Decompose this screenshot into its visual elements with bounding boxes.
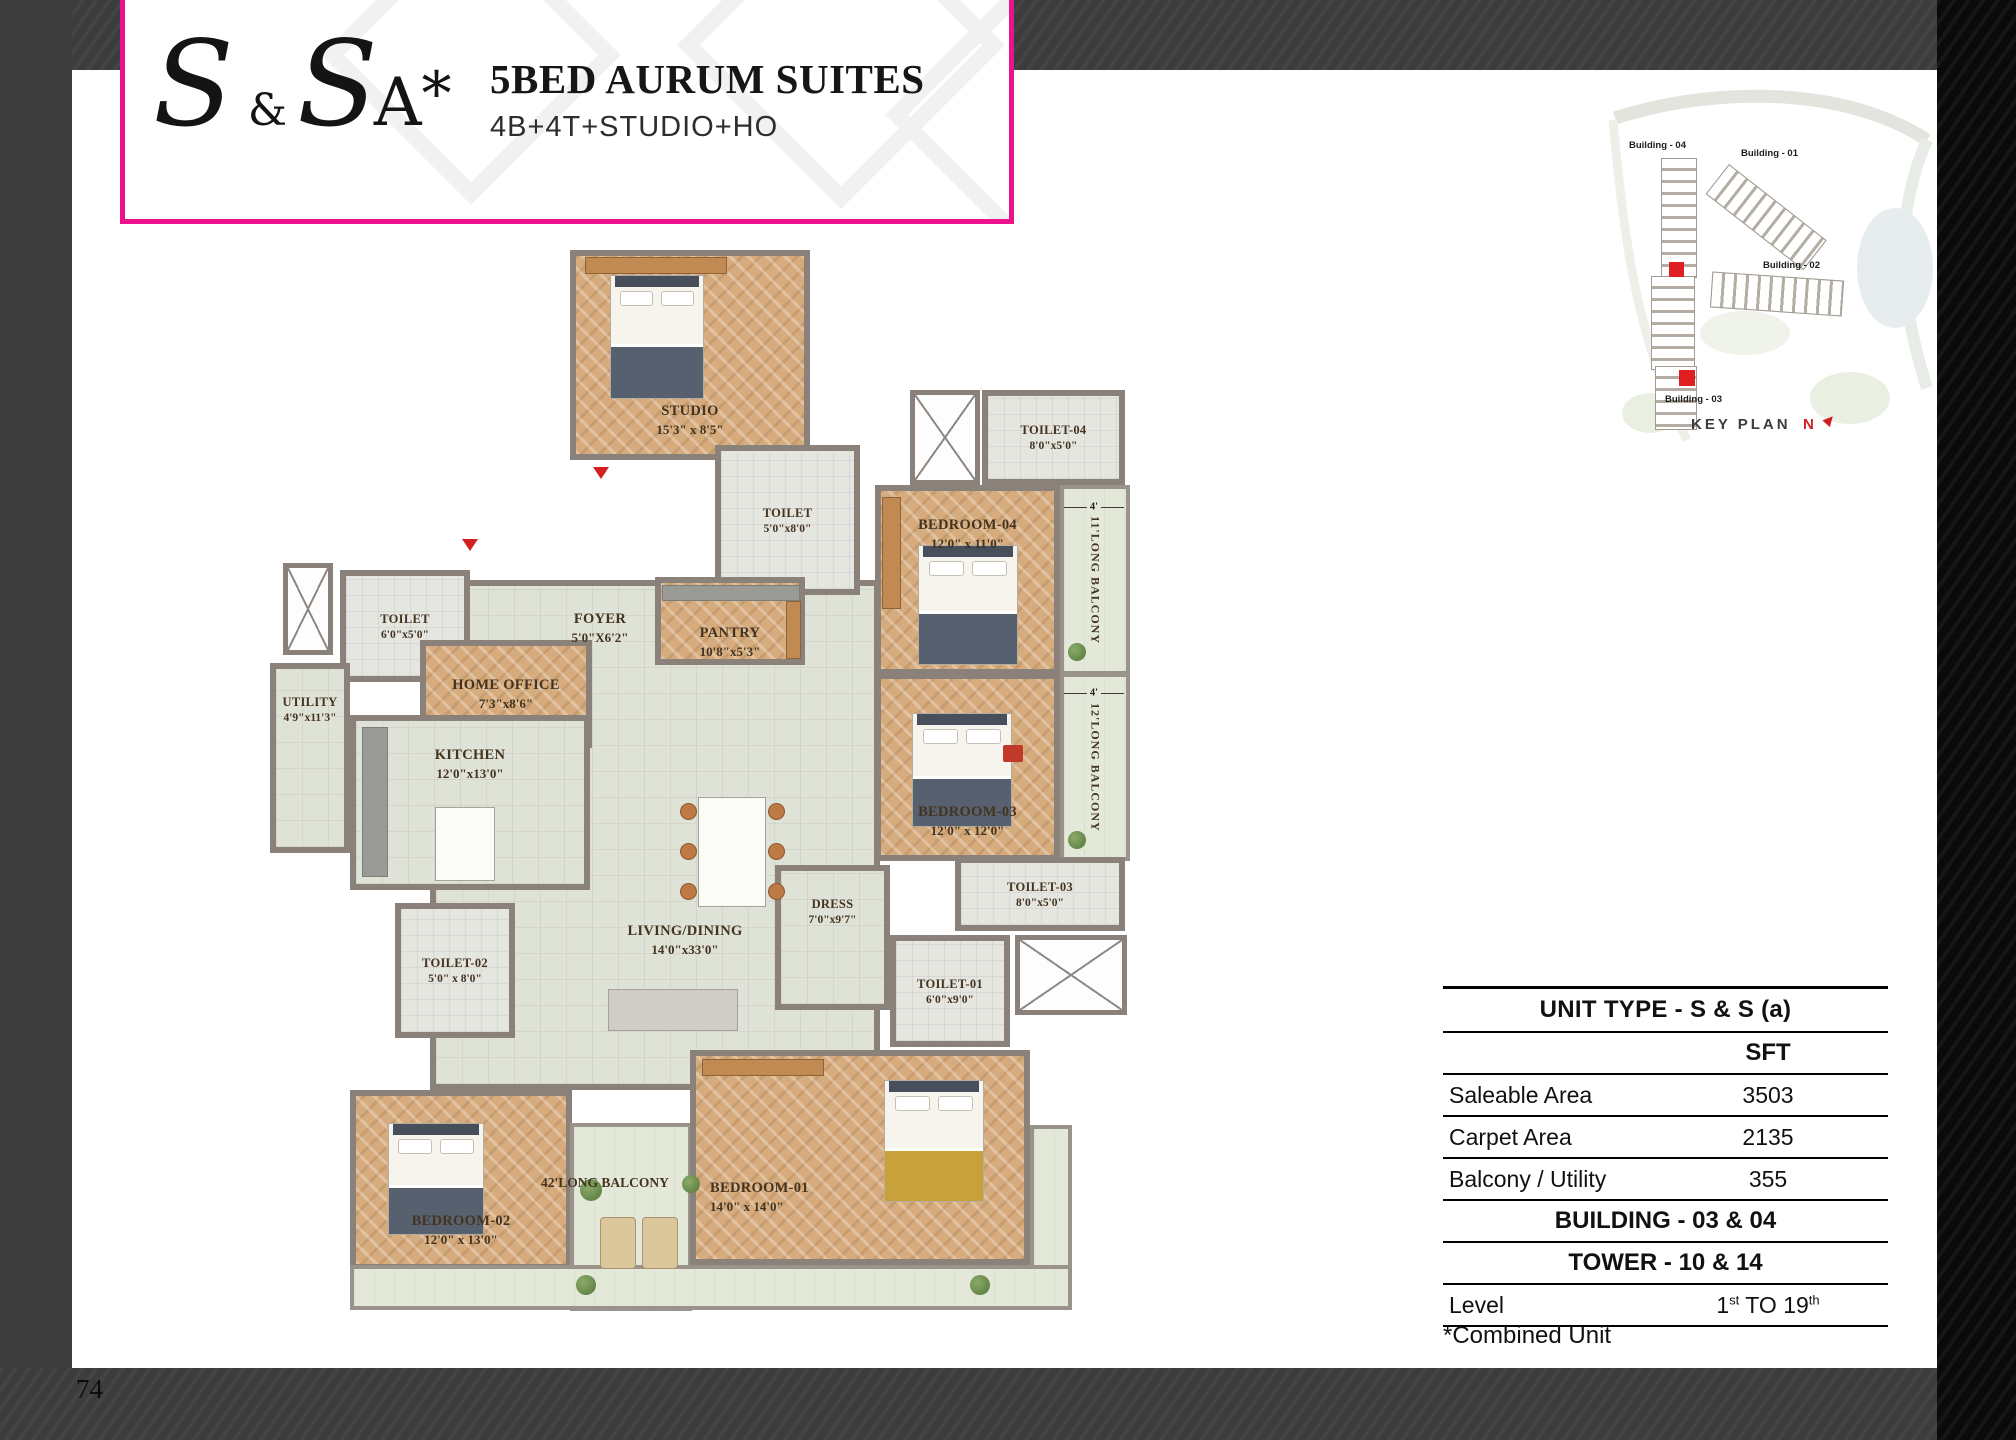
left-bar (0, 0, 72, 1440)
plant-graphic (576, 1275, 596, 1295)
key-plan-title: KEY PLAN (1691, 416, 1791, 433)
room-toilet-02: TOILET-025'0" x 8'0" (395, 903, 515, 1038)
shaft-graphic (910, 390, 980, 485)
chair-graphic (768, 883, 785, 900)
table-row: Saleable Area 3503 (1443, 1075, 1888, 1117)
building-04-block (1651, 276, 1695, 370)
north-label: N (1803, 416, 1814, 433)
sofa-graphic (608, 989, 738, 1031)
chair-graphic (680, 883, 697, 900)
appliance-graphic (786, 601, 801, 659)
bed-graphic (884, 1080, 984, 1202)
highlighted-unit-marker (1679, 370, 1695, 386)
entry-arrow (593, 467, 609, 479)
key-plan: Building - 04 Building - 01 Building - 0… (1595, 78, 1940, 463)
dimension-arrow: 4' (1064, 507, 1124, 508)
unit-details-table: UNIT TYPE - S & S (a) SFT Saleable Area … (1443, 986, 1888, 1327)
table-title: UNIT TYPE - S & S (a) (1443, 989, 1888, 1033)
table-building-row: BUILDING - 03 & 04 (1443, 1201, 1888, 1243)
bottom-bar (0, 1368, 1937, 1440)
building-02-label: Building - 02 (1763, 260, 1820, 271)
desk-graphic (702, 1059, 824, 1076)
chair-graphic (768, 843, 785, 860)
dimension-arrow: 4' (1064, 693, 1124, 694)
table-tower-row: TOWER - 10 & 14 (1443, 1243, 1888, 1285)
bed-graphic (610, 275, 704, 399)
plant-graphic (1068, 643, 1086, 661)
right-bar (1937, 0, 2016, 1440)
shaft-graphic (283, 563, 333, 655)
unit-logo: S & S A * (153, 25, 452, 143)
table-level-row: Level 1st TO 19th (1443, 1285, 1888, 1327)
room-toilet-03: TOILET-038'0"x5'0" (955, 857, 1125, 931)
wardrobe-graphic (882, 497, 901, 609)
page-number: 74 (76, 1374, 103, 1405)
bed-graphic (388, 1123, 484, 1235)
counter-graphic (362, 727, 388, 877)
lounger-graphic (642, 1217, 678, 1269)
bed-graphic (918, 545, 1018, 665)
room-utility: UTILITY4'9"x11'3" (270, 663, 350, 853)
floor-plan: STUDIO15'3" x 8'5" TOILET5'0"x8'0" TOILE… (270, 245, 1135, 1310)
highlighted-unit-marker (1669, 262, 1684, 277)
shaft-graphic (1015, 935, 1127, 1015)
header-logo-box: S & S A * 5BED AURUM SUITES 4B+4T+STUDIO… (120, 0, 1014, 224)
table-row: Balcony / Utility 355 (1443, 1159, 1888, 1201)
room-dress: DRESS7'0"x9'7" (775, 865, 890, 1010)
chair-graphic (1003, 745, 1023, 762)
counter-graphic (662, 585, 800, 601)
plant-graphic (1068, 831, 1086, 849)
logo-letter-s2: S (297, 25, 378, 143)
logo-asterisk: * (422, 59, 452, 129)
room-toilet-04: TOILET-048'0"x5'0" (982, 390, 1125, 485)
logo-ampersand: & (248, 85, 287, 136)
plant-graphic (970, 1275, 990, 1295)
brochure-page: 74 S & S A * 5BED AURUM SUITES 4B+4T+STU… (0, 0, 2016, 1440)
room-toilet-01: TOILET-016'0"x9'0" (890, 935, 1010, 1047)
table-header-row: SFT (1443, 1033, 1888, 1075)
chair-graphic (768, 803, 785, 820)
column-header-sft: SFT (1648, 1039, 1888, 1067)
page-subtitle: 4B+4T+STUDIO+HO (490, 111, 925, 144)
header-titles: 5BED AURUM SUITES 4B+4T+STUDIO+HO (490, 55, 925, 144)
lounger-graphic (600, 1217, 636, 1269)
page-title: 5BED AURUM SUITES (490, 55, 925, 103)
building-01-label: Building - 01 (1741, 148, 1798, 159)
building-03-label: Building - 03 (1665, 394, 1722, 405)
label-balcony-42ft: 42'LONG BALCONY (515, 1175, 695, 1191)
logo-letter-a: A (374, 64, 422, 141)
kitchen-island-graphic (435, 807, 495, 881)
building-04-block (1661, 158, 1697, 278)
dining-table-graphic (698, 797, 766, 907)
building-04-label: Building - 04 (1629, 140, 1686, 151)
combined-unit-footnote: *Combined Unit (1443, 1322, 1611, 1350)
table-row: Carpet Area 2135 (1443, 1117, 1888, 1159)
balcony-42ft (350, 1265, 1072, 1310)
chair-graphic (680, 843, 697, 860)
room-toilet-studio: TOILET5'0"x8'0" (715, 445, 860, 595)
entry-arrow (462, 539, 478, 551)
bed-graphic (912, 713, 1012, 827)
wardrobe-graphic (585, 257, 727, 274)
logo-letter-s1: S (153, 25, 234, 143)
chair-graphic (680, 803, 697, 820)
